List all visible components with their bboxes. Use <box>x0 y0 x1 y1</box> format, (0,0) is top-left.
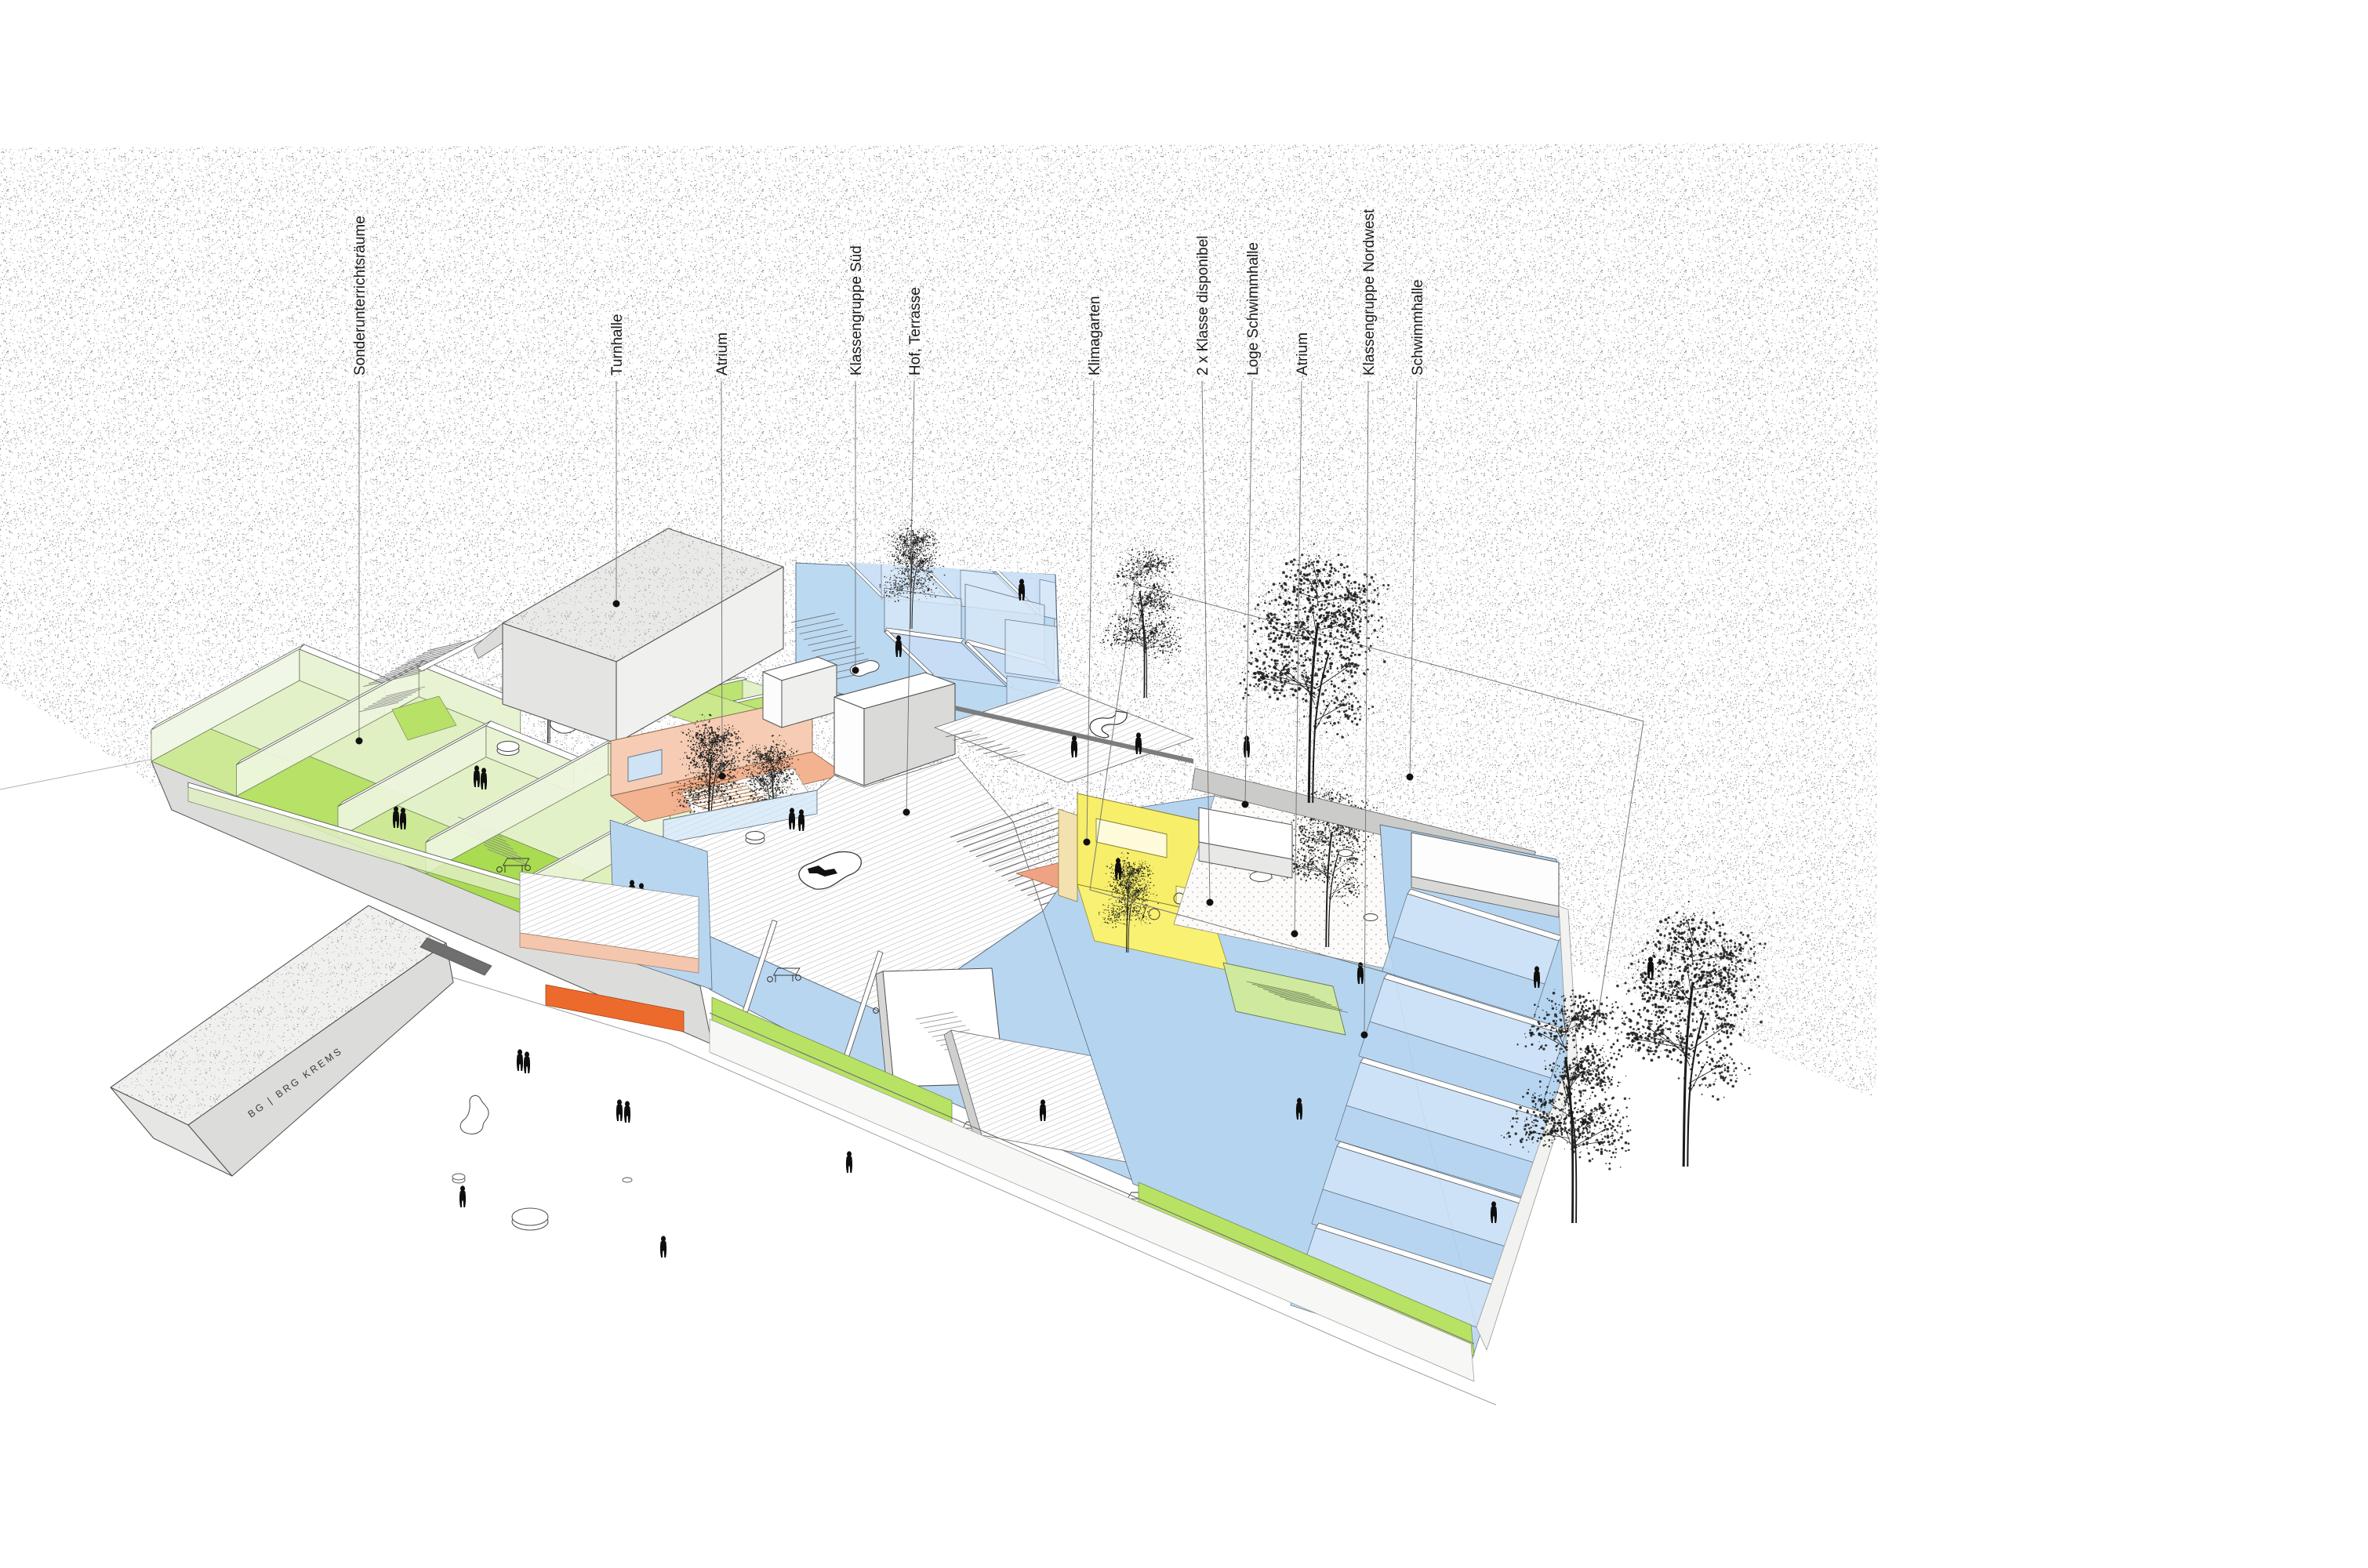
svg-text:Loge Schwimmhalle: Loge Schwimmhalle <box>1245 242 1262 376</box>
svg-text:Klassengruppe Süd: Klassengruppe Süd <box>848 245 865 376</box>
svg-text:Klimagarten: Klimagarten <box>1087 296 1103 376</box>
svg-text:Atrium: Atrium <box>714 332 731 376</box>
svg-text:Klassengruppe Nordwest: Klassengruppe Nordwest <box>1361 209 1378 376</box>
svg-text:Turnhalle: Turnhalle <box>609 314 626 376</box>
svg-text:2 x Klasse disponibel: 2 x Klasse disponibel <box>1195 236 1211 376</box>
svg-text:Atrium: Atrium <box>1295 332 1311 376</box>
svg-text:Hof, Terrasse: Hof, Terrasse <box>907 287 924 376</box>
svg-text:Sonderunterrichtsräume: Sonderunterrichtsräume <box>352 216 369 376</box>
svg-text:Schwimmhalle: Schwimmhalle <box>1410 280 1426 376</box>
